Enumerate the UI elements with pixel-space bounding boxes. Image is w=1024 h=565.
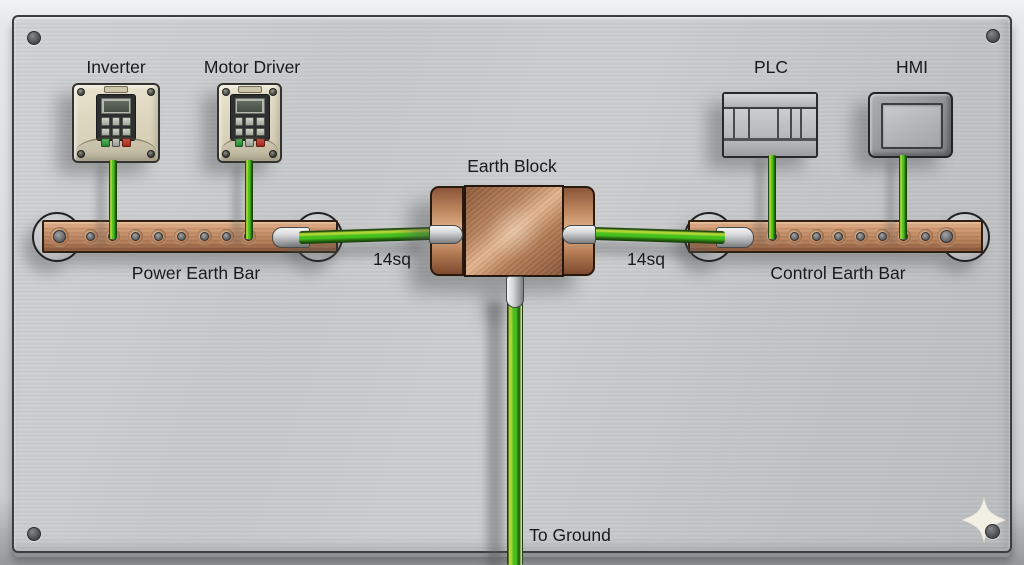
keypad-button [101,128,110,137]
terminal-hole-center [154,232,164,242]
keypad-button [122,117,131,126]
hmi-earth-wire [899,155,907,239]
plc-module [792,109,802,138]
hmi-label: HMI [896,57,928,77]
vent-icon [104,86,128,93]
drive-lcd-display [235,98,265,114]
terminal-hole-center [200,232,210,242]
terminal-hole [83,229,98,244]
cover-seam [221,137,278,161]
terminal-hole-center [812,232,822,242]
drive-lcd-display [101,98,131,114]
terminal-hole [937,227,956,246]
hmi-device [868,92,953,158]
inverter-earth-wire [109,160,117,239]
inverter-label: Inverter [86,57,145,77]
terminal-hole [219,229,234,244]
plc-module [779,109,792,138]
earth-block [405,180,620,320]
terminal-hole-center [921,232,931,242]
terminal-hole [809,229,824,244]
hmi-body [868,92,953,158]
terminal-hole-center [86,232,96,242]
terminal-hole [128,229,143,244]
plc-module [750,109,779,138]
motor-driver-earth-wire [245,160,253,239]
lcd-screen [104,101,129,112]
plc-earth-wire [768,155,776,239]
inverter-device [72,83,160,163]
panel-screw-icon [986,29,1000,43]
keypad-button [122,128,131,137]
terminal-hole [831,229,846,244]
keypad-button [112,117,121,126]
earth-block-label: Earth Block [467,156,556,176]
terminal-hole [853,229,868,244]
power-earth-bar-label: Power Earth Bar [132,263,260,283]
terminal-hole [174,229,189,244]
device-screw-icon [269,88,277,96]
wire-ferrule [506,276,524,308]
terminal-hole [787,229,802,244]
keypad-button [245,117,254,126]
motor-driver-body [217,83,282,163]
device-screw-icon [147,88,155,96]
terminal-hole-center [222,232,232,242]
plc-module [802,109,816,138]
terminal-hole-center [790,232,800,242]
terminal-hole-center [131,232,141,242]
plc-device [722,92,818,158]
sparkle-logo-icon [962,497,1006,548]
terminal-hole [151,229,166,244]
ground-wire [507,298,523,565]
plc-module-row [724,109,816,141]
device-screw-icon [77,88,85,96]
hmi-screen [881,103,943,149]
terminal-hole-center [53,230,66,243]
keypad-button [235,128,244,137]
terminal-hole [918,229,933,244]
keypad-button [235,117,244,126]
keypad-button [245,128,254,137]
wire-ferrule [429,225,463,244]
keypad-button [112,128,121,137]
panel-screw-icon [985,524,1000,539]
control-earth-bar-label: Control Earth Bar [770,263,905,283]
motor-driver-label: Motor Driver [204,57,300,77]
keypad-button [256,128,265,137]
vent-icon [238,86,262,93]
earthing-diagram: Inverter Motor Driver PLC HMI Earth Bloc… [0,0,1024,565]
lcd-screen [237,101,262,112]
plc-module [724,109,735,138]
plc-top-rail [724,94,816,109]
plc-label: PLC [754,57,788,77]
earth-block-center [464,185,564,277]
terminal-hole [875,229,890,244]
to-ground-label: To Ground [529,525,611,545]
motor-driver-device [217,83,282,163]
terminal-hole-center [834,232,844,242]
plc-bottom-rail [724,141,816,156]
terminal-hole-center [177,232,187,242]
drive-keypad [96,94,136,141]
plc-module [735,109,750,138]
panel-screw-icon [27,31,41,45]
cover-seam [76,137,156,161]
keypad-button [101,117,110,126]
terminal-hole-center [940,230,953,243]
terminal-hole [50,227,69,246]
keypad-button [256,117,265,126]
panel-screw-icon [27,527,41,541]
terminal-hole-center [878,232,888,242]
left-wire-size-label: 14sq [373,249,411,269]
wire-ferrule [562,225,596,244]
terminal-hole-center [856,232,866,242]
plc-body [722,92,818,158]
inverter-body [72,83,160,163]
terminal-hole [197,229,212,244]
right-wire-size-label: 14sq [627,249,665,269]
drive-keypad [230,94,270,141]
